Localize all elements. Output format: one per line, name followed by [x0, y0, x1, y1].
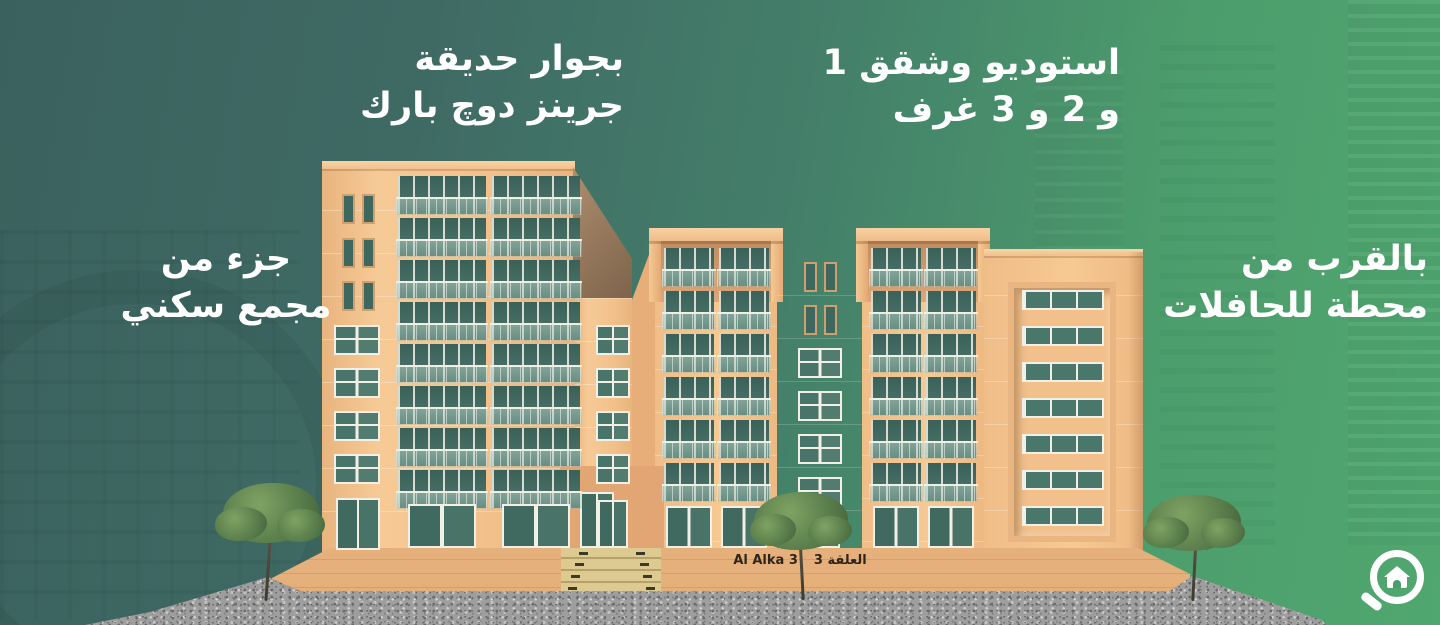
- window-bal: [871, 377, 921, 415]
- window-sq: [334, 368, 380, 398]
- window-strip: [1022, 398, 1104, 418]
- window-bal: [664, 377, 714, 415]
- window-bal: [664, 420, 714, 458]
- window-bal: [492, 176, 580, 214]
- window-bal: [719, 377, 769, 415]
- annotation-complex: جزء من مجمع سكني: [78, 236, 374, 330]
- window-bal: [398, 176, 486, 214]
- annotation-park-line2: جرينز دوچ بارك: [324, 83, 624, 130]
- window-sq: [596, 325, 630, 355]
- window-strip: [1022, 326, 1104, 346]
- annotation-unit-mix-line2: و 2 و 3 غرف: [808, 87, 1120, 134]
- magnifier-lens-icon: [1370, 550, 1424, 604]
- annotation-park-line1: بجوار حديقة: [324, 36, 624, 83]
- window-bal: [719, 291, 769, 329]
- annotation-complex-line1: جزء من: [78, 236, 374, 283]
- right-tower-crown-bar: [856, 228, 990, 241]
- left-tower-parapet: [322, 161, 575, 169]
- window-bal: [926, 463, 976, 501]
- window-sq: [596, 368, 630, 398]
- window-sq: [798, 434, 842, 464]
- annotation-bus-station: بالقرب من محطة للحافلات: [1126, 236, 1428, 330]
- poster-canvas: Al Alka 3 العلقة 3 بجوار حديقة جرينز دوچ…: [0, 0, 1440, 625]
- window-sq: [596, 454, 630, 484]
- window-door: [598, 500, 628, 548]
- window-bal: [871, 463, 921, 501]
- window-door: [502, 504, 570, 548]
- window-sq: [334, 454, 380, 484]
- window-door: [666, 506, 712, 548]
- middle-tower-crown-bar: [649, 228, 783, 241]
- window-bal: [664, 248, 714, 286]
- window-bal: [492, 218, 580, 256]
- window-bal: [398, 386, 486, 424]
- tree-middle: [750, 492, 852, 604]
- window-bal: [492, 386, 580, 424]
- window-door: [928, 506, 974, 548]
- window-bal: [398, 470, 486, 508]
- window-strip: [1022, 290, 1104, 310]
- window-door: [336, 498, 380, 550]
- annotation-bus-station-line1: بالقرب من: [1126, 236, 1428, 283]
- home-search-logo-icon: [1356, 550, 1438, 622]
- annotation-unit-mix-line1: استوديو وشقق 1: [808, 40, 1120, 87]
- house-door-icon: [1393, 580, 1401, 588]
- window-bal: [492, 344, 580, 382]
- window-bal: [871, 420, 921, 458]
- window-bal: [926, 377, 976, 415]
- window-bal: [664, 291, 714, 329]
- window-bal: [664, 463, 714, 501]
- window-door: [408, 504, 476, 548]
- window-bal: [398, 428, 486, 466]
- annotation-complex-line2: مجمع سكني: [78, 283, 374, 330]
- window-sq: [334, 411, 380, 441]
- window-bal: [871, 248, 921, 286]
- window-sq: [798, 348, 842, 378]
- window-strip: [1022, 362, 1104, 382]
- window-bal: [492, 260, 580, 298]
- left-tower-setback-wall: [573, 167, 632, 298]
- window-bal: [926, 248, 976, 286]
- window-bal: [719, 334, 769, 372]
- window-bal: [926, 334, 976, 372]
- window-bal: [398, 302, 486, 340]
- annotation-park: بجوار حديقة جرينز دوچ بارك: [324, 36, 624, 130]
- window-bal: [664, 334, 714, 372]
- window-bal: [719, 248, 769, 286]
- window-bal: [871, 334, 921, 372]
- annotation-unit-mix: استوديو وشقق 1 و 2 و 3 غرف: [808, 40, 1120, 134]
- window-strip: [1022, 506, 1104, 526]
- tree-left: [215, 483, 330, 605]
- entrance-steps: [561, 548, 661, 595]
- window-strip: [1022, 470, 1104, 490]
- window-bal: [926, 420, 976, 458]
- window-slitpair: [798, 262, 842, 292]
- window-strip: [1022, 434, 1104, 454]
- window-sq: [798, 391, 842, 421]
- window-bal: [492, 428, 580, 466]
- window-bal: [719, 420, 769, 458]
- window-sq: [596, 411, 630, 441]
- window-slitpair: [336, 194, 380, 224]
- window-bal: [871, 291, 921, 329]
- window-bal: [398, 218, 486, 256]
- window-bal: [492, 302, 580, 340]
- window-bal: [398, 344, 486, 382]
- annotation-bus-station-line2: محطة للحافلات: [1126, 283, 1428, 330]
- window-door: [873, 506, 919, 548]
- tree-right: [1143, 495, 1245, 605]
- window-bal: [492, 470, 580, 508]
- right-wing-parapet: [984, 249, 1143, 256]
- window-slitpair: [798, 305, 842, 335]
- window-bal: [926, 291, 976, 329]
- window-bal: [398, 260, 486, 298]
